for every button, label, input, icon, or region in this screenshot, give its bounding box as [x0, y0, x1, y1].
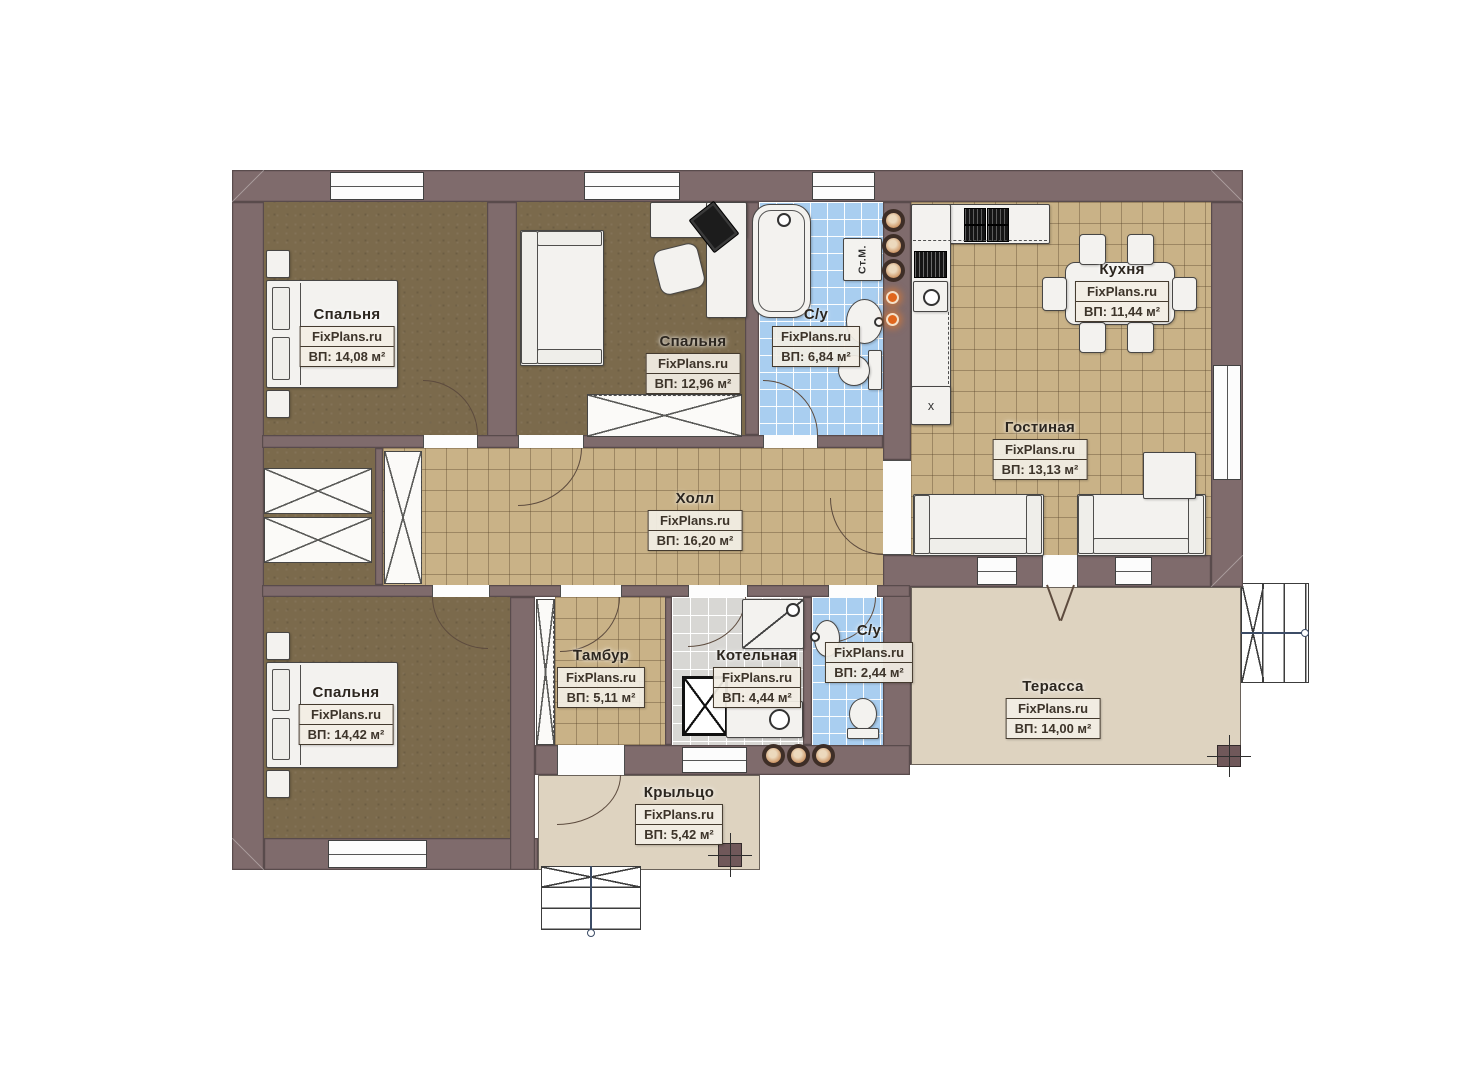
washing-machine-icon: Ст.М.	[843, 238, 882, 281]
flue-pipe-icon	[812, 744, 835, 767]
room-area: ВП: 14,42 м²	[300, 725, 393, 744]
door-opening-bedroom-3	[432, 585, 490, 597]
watermark: FixPlans.ru	[647, 354, 740, 374]
room-info-box: FixPlans.ru ВП: 6,84 м²	[772, 326, 860, 367]
room-label-bedroom-2: Спальня FixPlans.ru ВП: 12,96 м²	[646, 333, 741, 394]
room-name: С/у	[857, 622, 881, 639]
chair-icon	[1172, 277, 1197, 311]
column	[1217, 745, 1241, 767]
pillow-icon	[272, 337, 290, 380]
room-label-vestibule: Тамбур FixPlans.ru ВП: 5,11 м²	[557, 647, 645, 708]
room-name: Спальня	[660, 333, 727, 350]
heating-valve-icon	[886, 291, 899, 304]
flue-pipe-icon	[787, 744, 810, 767]
counter-dash	[913, 240, 1047, 241]
door-opening-bathroom-small	[828, 585, 878, 597]
room-name: Гостиная	[1005, 419, 1075, 436]
wall-vestibule-boiler	[665, 597, 672, 745]
door-opening-porch	[557, 745, 625, 775]
watermark: FixPlans.ru	[773, 327, 859, 347]
faucet-icon	[923, 289, 940, 306]
bathtub-icon	[752, 204, 811, 318]
wall-boiler-bathroom	[803, 597, 812, 745]
room-label-terrace: Терасса FixPlans.ru ВП: 14,00 м²	[1006, 678, 1101, 739]
window-living-right	[1115, 557, 1152, 585]
sofa-icon	[520, 230, 604, 366]
washing-machine-label: Ст.М.	[844, 239, 881, 280]
door-opening-bedroom-1	[423, 435, 478, 448]
door-opening-bedroom-2	[518, 435, 584, 448]
room-info-box: FixPlans.ru ВП: 5,11 м²	[557, 667, 645, 708]
wall-corner-mark	[232, 838, 264, 870]
room-area: ВП: 14,00 м²	[1007, 719, 1100, 738]
heating-valve-icon	[886, 313, 899, 326]
chair-icon	[1042, 277, 1067, 311]
passage-hall-living	[883, 460, 911, 555]
room-info-box: FixPlans.ru ВП: 11,44 м²	[1075, 281, 1169, 322]
room-info-box: FixPlans.ru ВП: 14,42 м²	[299, 704, 394, 745]
stairs-direction-line	[590, 866, 592, 932]
room-area: ВП: 6,84 м²	[773, 347, 859, 366]
sofa-armrest	[1078, 495, 1094, 554]
sofa-armrest	[537, 349, 602, 364]
room-label-boiler-room: Котельная FixPlans.ru ВП: 4,44 м²	[713, 647, 801, 708]
room-label-bedroom-3: Спальня FixPlans.ru ВП: 14,42 м²	[299, 684, 394, 745]
room-label-living-room: Гостиная FixPlans.ru ВП: 13,13 м²	[993, 419, 1088, 480]
stove-burner-icon	[964, 208, 986, 225]
watermark: FixPlans.ru	[300, 705, 393, 725]
room-label-porch: Крыльцо FixPlans.ru ВП: 5,42 м²	[635, 784, 723, 845]
flue-pipe-icon	[762, 744, 785, 767]
room-name: Спальня	[314, 306, 381, 323]
room-info-box: FixPlans.ru ВП: 13,13 м²	[993, 439, 1088, 480]
pillow-icon	[272, 287, 290, 330]
room-area: ВП: 11,44 м²	[1076, 302, 1168, 321]
room-area: ВП: 4,44 м²	[714, 688, 800, 707]
watermark: FixPlans.ru	[1076, 282, 1168, 302]
watermark: FixPlans.ru	[1007, 699, 1100, 719]
wall-bedroom3-east	[510, 597, 535, 870]
sofa-armrest	[537, 231, 602, 246]
room-label-bedroom-1: Спальня FixPlans.ru ВП: 14,08 м²	[300, 306, 395, 367]
sofa-back	[1093, 538, 1189, 554]
room-floor-hall	[383, 448, 883, 585]
room-info-box: FixPlans.ru ВП: 16,20 м²	[648, 510, 743, 551]
toilet-icon	[849, 698, 877, 730]
column	[718, 843, 742, 867]
sofa-icon	[913, 494, 1044, 556]
room-area: ВП: 13,13 м²	[994, 460, 1087, 479]
window-bedroom-1	[330, 172, 424, 200]
room-area: ВП: 12,96 м²	[647, 374, 740, 393]
wardrobe-icon	[384, 451, 422, 584]
room-info-box: FixPlans.ru ВП: 5,42 м²	[635, 804, 723, 845]
nightstand-icon	[266, 770, 290, 798]
flue-pipe-icon	[882, 209, 905, 232]
nightstand-icon	[266, 390, 290, 418]
wall-bedroom1-bedroom2	[487, 202, 517, 448]
shower-head-icon	[786, 603, 800, 617]
room-info-box: FixPlans.ru ВП: 14,08 м²	[300, 326, 395, 367]
room-info-box: FixPlans.ru ВП: 4,44 м²	[713, 667, 801, 708]
room-info-box: FixPlans.ru ВП: 14,00 м²	[1006, 698, 1101, 739]
wardrobe-front-dash	[421, 453, 422, 582]
sofa-armrest	[914, 495, 930, 554]
watermark: FixPlans.ru	[826, 643, 912, 663]
stove-burner-icon	[987, 208, 1009, 225]
room-info-box: FixPlans.ru ВП: 2,44 м²	[825, 642, 913, 683]
wardrobe-icon	[264, 517, 372, 563]
wardrobe-icon	[264, 468, 372, 514]
watermark: FixPlans.ru	[636, 805, 722, 825]
room-name: Кухня	[1099, 261, 1144, 278]
tv-stand	[1143, 452, 1196, 499]
room-name: Котельная	[716, 647, 797, 664]
room-label-bathroom-small: С/у FixPlans.ru ВП: 2,44 м²	[825, 622, 913, 683]
wall-strip-east	[375, 448, 383, 585]
room-area: ВП: 2,44 м²	[826, 663, 912, 682]
room-name: Тамбур	[573, 647, 629, 664]
window-bathroom-main	[812, 172, 875, 200]
chair-icon	[1127, 322, 1154, 353]
flue-pipe-icon	[882, 234, 905, 257]
dish-rack-icon	[914, 251, 947, 278]
sofa-icon	[1077, 494, 1206, 556]
door-opening-boiler	[688, 585, 748, 597]
counter-dash	[948, 312, 949, 384]
faucet-icon	[810, 632, 820, 642]
fridge-icon: х	[911, 386, 951, 425]
stairs-direction-line	[1241, 632, 1305, 634]
wall-corner-mark	[232, 170, 264, 202]
room-label-kitchen: Кухня FixPlans.ru ВП: 11,44 м²	[1075, 261, 1169, 322]
window-boiler-room	[682, 747, 747, 773]
pillow-icon	[272, 669, 290, 711]
fridge-label: х	[912, 387, 950, 424]
toilet-tank-icon	[868, 350, 882, 390]
room-label-bathroom-main: С/у FixPlans.ru ВП: 6,84 м²	[772, 306, 860, 367]
sofa-armrest	[1188, 495, 1204, 554]
utility-sink-icon	[769, 709, 790, 730]
wardrobe-icon	[587, 394, 742, 437]
room-area: ВП: 16,20 м²	[649, 531, 742, 550]
watermark: FixPlans.ru	[994, 440, 1087, 460]
nightstand-icon	[266, 632, 290, 660]
watermark: FixPlans.ru	[649, 511, 742, 531]
sofa-armrest	[1026, 495, 1042, 554]
room-name: Холл	[676, 490, 715, 507]
sofa-back	[521, 231, 538, 364]
room-info-box: FixPlans.ru ВП: 12,96 м²	[646, 353, 741, 394]
stairs-start-dot	[587, 929, 595, 937]
window-living-east	[1213, 365, 1241, 480]
watermark: FixPlans.ru	[714, 668, 800, 688]
toilet-tank-icon	[847, 728, 879, 739]
watermark: FixPlans.ru	[301, 327, 394, 347]
room-label-hall: Холл FixPlans.ru ВП: 16,20 м²	[648, 490, 743, 551]
window-bedroom-3	[328, 840, 427, 868]
room-area: ВП: 14,08 м²	[301, 347, 394, 366]
door-opening-bathroom-main	[763, 435, 818, 448]
floor-plan-canvas: Ст.М. х	[0, 0, 1473, 1080]
room-area: ВП: 5,42 м²	[636, 825, 722, 844]
pillow-icon	[272, 718, 290, 760]
stairs-start-dot	[1301, 629, 1309, 637]
bathtub-drain-icon	[777, 213, 791, 227]
room-name: С/у	[804, 306, 828, 323]
room-name: Крыльцо	[644, 784, 714, 801]
faucet-icon	[874, 317, 884, 327]
wall-left	[232, 202, 264, 870]
shower-icon	[742, 599, 804, 649]
wall-corner-mark	[1211, 555, 1243, 587]
door-opening-vestibule	[560, 585, 622, 597]
window-bedroom-2	[584, 172, 680, 200]
wall-corner-mark	[1211, 170, 1243, 202]
sofa-back	[929, 538, 1027, 554]
room-area: ВП: 5,11 м²	[558, 688, 644, 707]
door-opening-terrace	[1042, 555, 1078, 587]
window-living-left	[977, 557, 1017, 585]
watermark: FixPlans.ru	[558, 668, 644, 688]
room-name: Терасса	[1022, 678, 1084, 695]
wardrobe-front-dash	[589, 395, 740, 396]
chair-icon	[1079, 322, 1106, 353]
flue-pipe-icon	[882, 259, 905, 282]
nightstand-icon	[266, 250, 290, 278]
wardrobe-front-dash	[553, 601, 554, 743]
kitchen-sink-icon	[913, 281, 948, 312]
room-name: Спальня	[313, 684, 380, 701]
